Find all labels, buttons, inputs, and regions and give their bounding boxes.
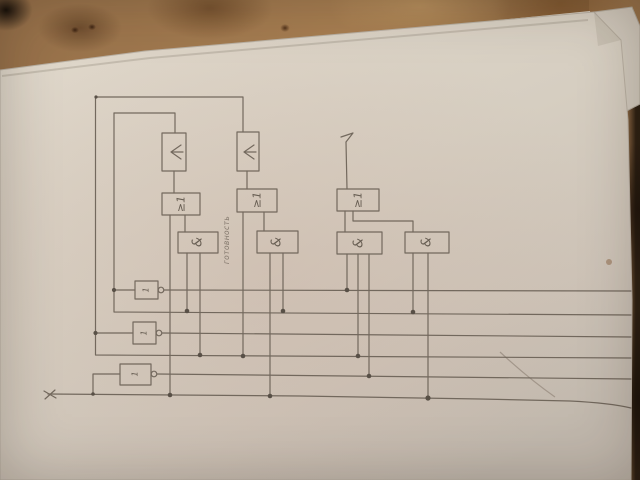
not-gate-label: 1 [142, 287, 151, 292]
paper-stain [606, 259, 612, 265]
junction-dot [411, 310, 416, 315]
and-gate-label: & [270, 237, 285, 247]
junction-dot [268, 394, 273, 399]
junction-dot [168, 393, 173, 398]
photo-of-paper-schematic: ≥1 ≥1 ≥1 & & & & 1 1 1 готовность x [0, 0, 640, 480]
junction-dot [93, 331, 97, 335]
junction-dot [356, 354, 361, 359]
and-gate-label: & [191, 237, 206, 247]
junction-dot [281, 309, 286, 314]
paper-sheet [0, 12, 632, 480]
junction-dot [185, 309, 190, 314]
junction-dot [367, 374, 372, 379]
or-gate-label: ≥1 [175, 196, 188, 212]
handwritten-note: готовность [222, 216, 231, 264]
and-gate-label: & [420, 237, 435, 247]
schematic-drawing: ≥1 ≥1 ≥1 & & & & 1 1 1 готовность x [0, 0, 640, 480]
junction-dot [345, 288, 350, 293]
junction-dot [91, 392, 95, 396]
and-gate-label: & [352, 238, 367, 248]
junction-dot [198, 353, 203, 358]
junction-dot [241, 354, 246, 359]
paper-pink-cast [0, 12, 632, 480]
or-gate-label: ≥1 [352, 192, 365, 208]
junction-dot [425, 395, 430, 400]
or-gate-label: ≥1 [251, 192, 264, 208]
not-gate-label: 1 [131, 371, 140, 376]
junction-dot [112, 288, 116, 292]
not-gate-label: 1 [140, 330, 149, 335]
junction-dot [94, 95, 97, 98]
